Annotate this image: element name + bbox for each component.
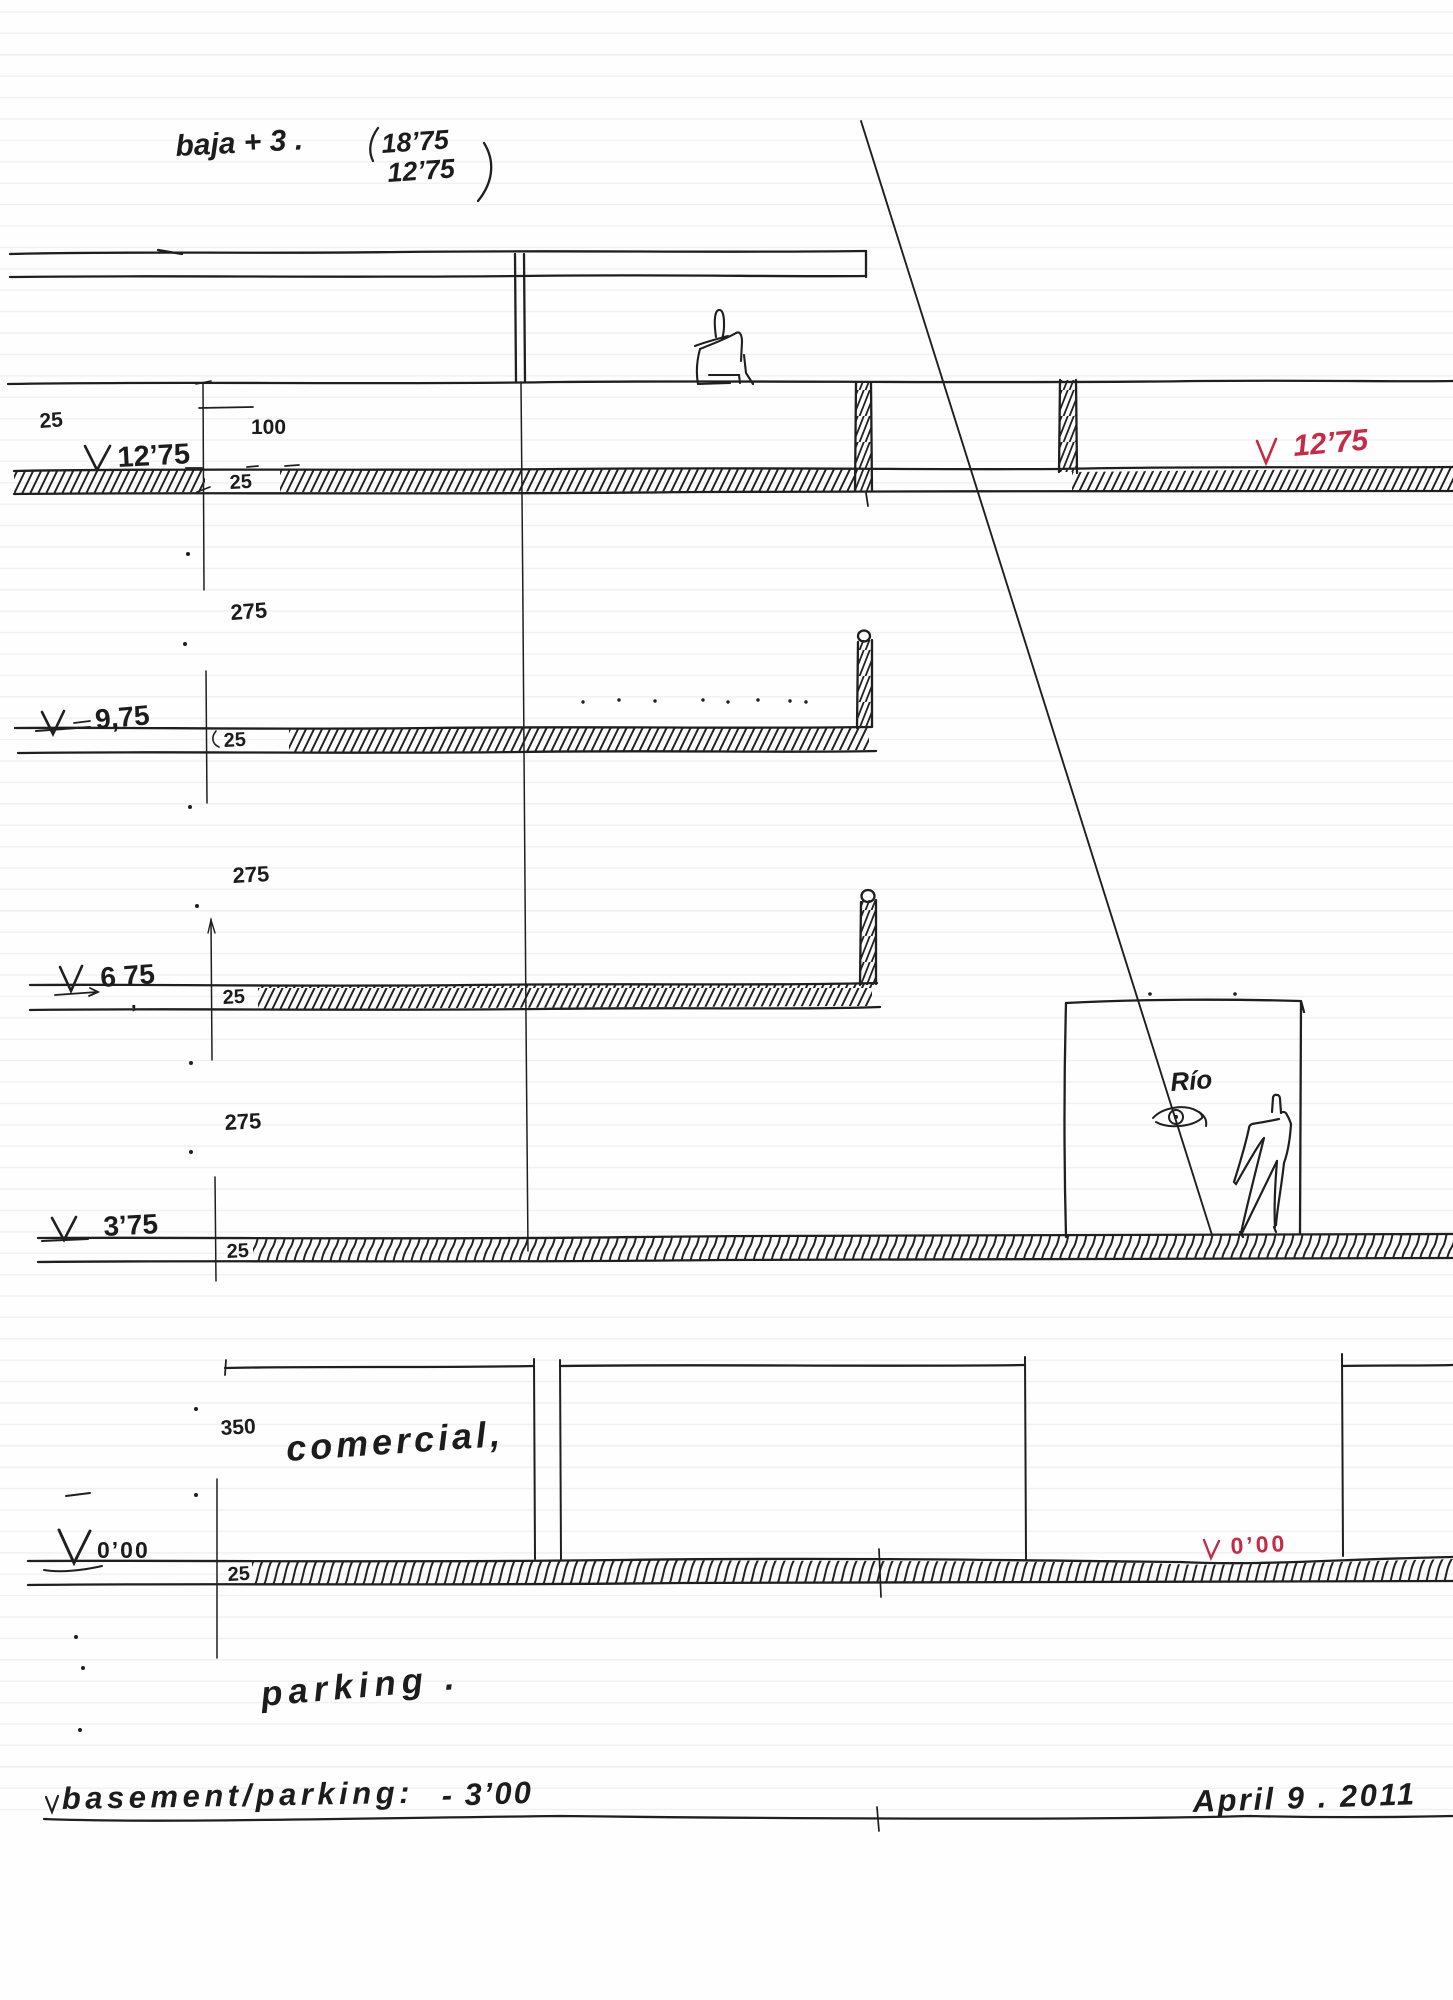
svg-text:25: 25 xyxy=(229,471,252,494)
svg-text:25: 25 xyxy=(227,1563,250,1586)
svg-text:25: 25 xyxy=(226,1240,249,1263)
svg-text:Río: Río xyxy=(1169,1064,1213,1097)
svg-text:3’75: 3’75 xyxy=(103,1208,159,1242)
svg-text:12’75: 12’75 xyxy=(1292,423,1371,463)
svg-text:12’75: 12’75 xyxy=(117,438,191,474)
svg-text:100: 100 xyxy=(251,416,286,439)
svg-text:25: 25 xyxy=(222,986,245,1009)
svg-text:25: 25 xyxy=(39,408,64,433)
svg-text:,: , xyxy=(131,991,137,1013)
svg-text:6 75: 6 75 xyxy=(99,958,156,993)
svg-text:0’00: 0’00 xyxy=(97,1537,150,1563)
svg-text:9,75: 9,75 xyxy=(94,699,151,735)
svg-text:275: 275 xyxy=(232,861,270,888)
svg-text:baja + 3 .: baja + 3 . xyxy=(175,123,304,163)
svg-text:350: 350 xyxy=(220,1415,256,1440)
svg-text:25: 25 xyxy=(223,729,246,752)
svg-text:0’00: 0’00 xyxy=(1230,1530,1288,1559)
svg-text:12’75: 12’75 xyxy=(386,153,456,188)
svg-text:275: 275 xyxy=(230,597,268,625)
svg-text:- 3’00: - 3’00 xyxy=(441,1775,533,1813)
svg-text:basement/parking:: basement/parking: xyxy=(62,1775,415,1816)
svg-text:275: 275 xyxy=(224,1108,262,1135)
